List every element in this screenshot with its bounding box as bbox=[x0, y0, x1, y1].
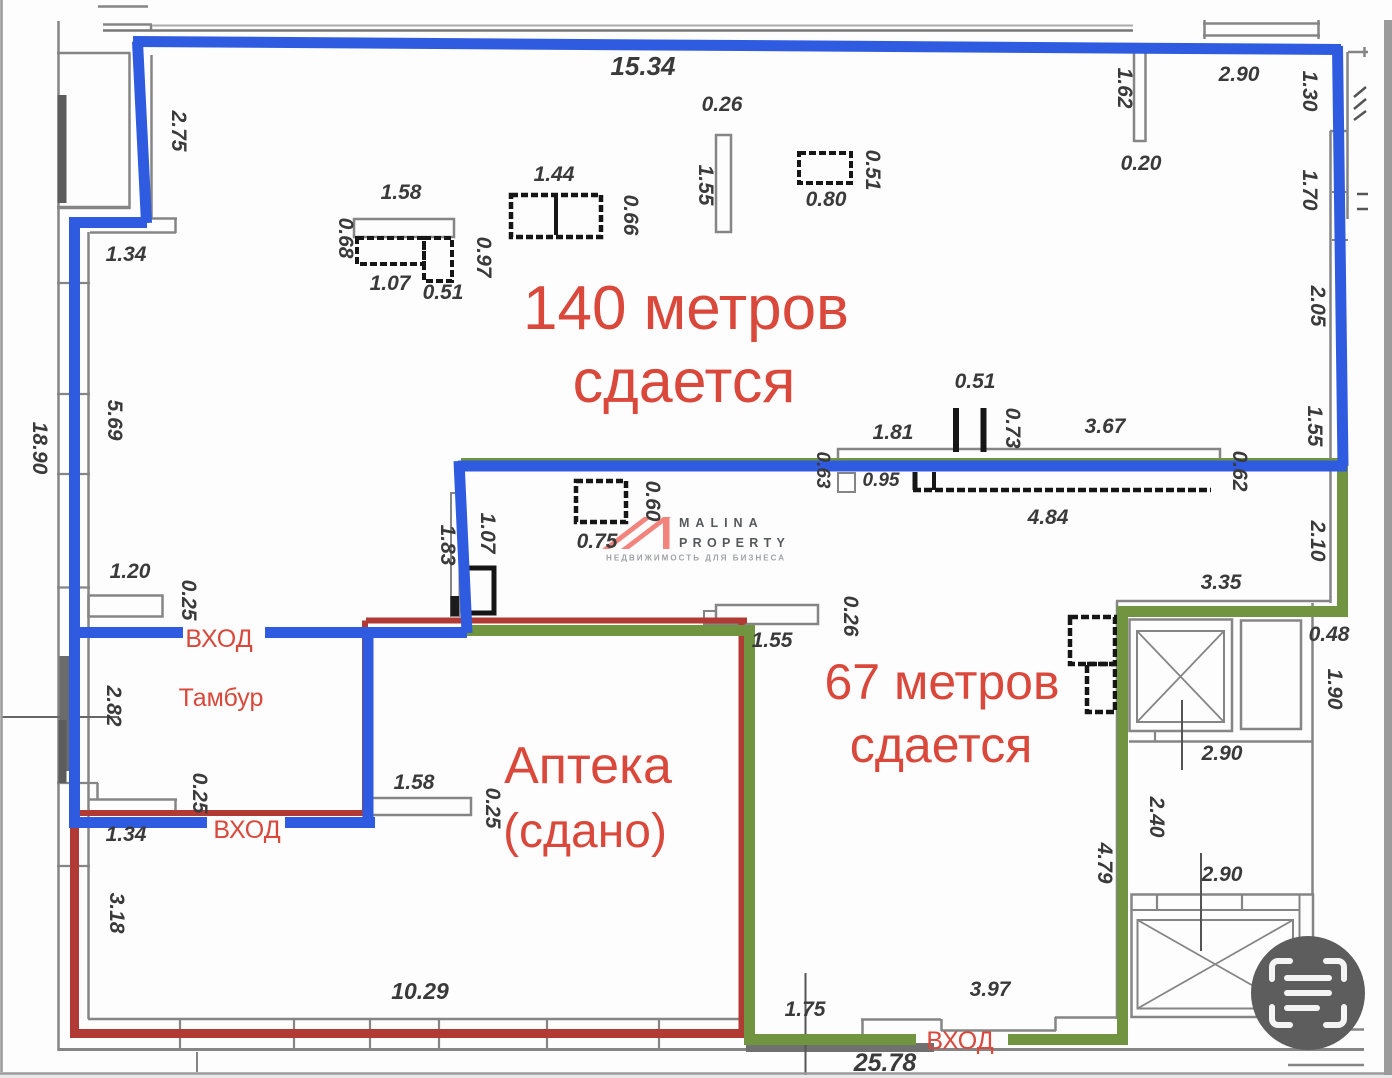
svg-text:3.67: 3.67 bbox=[1085, 415, 1127, 438]
svg-text:18.90: 18.90 bbox=[28, 422, 51, 475]
svg-text:3.18: 3.18 bbox=[105, 893, 128, 934]
svg-text:0.25: 0.25 bbox=[481, 788, 504, 829]
svg-text:2.90: 2.90 bbox=[1201, 863, 1243, 886]
svg-text:1.34: 1.34 bbox=[106, 243, 147, 266]
svg-text:Тамбур: Тамбур bbox=[179, 684, 264, 712]
svg-text:сдается: сдается bbox=[573, 347, 796, 415]
svg-text:MALINA: MALINA bbox=[679, 516, 764, 530]
svg-text:1.75: 1.75 bbox=[785, 998, 826, 1021]
svg-text:(сдано): (сдано) bbox=[503, 805, 667, 858]
svg-text:0.73: 0.73 bbox=[1001, 408, 1024, 449]
svg-text:5.69: 5.69 bbox=[103, 400, 126, 441]
svg-text:ВХОД: ВХОД bbox=[185, 625, 252, 653]
svg-text:10.29: 10.29 bbox=[391, 978, 449, 1004]
svg-text:0.25: 0.25 bbox=[177, 580, 200, 621]
svg-text:Аптека: Аптека bbox=[504, 737, 672, 795]
svg-text:2.40: 2.40 bbox=[1145, 796, 1168, 838]
svg-text:0.63: 0.63 bbox=[812, 452, 833, 489]
svg-text:15.34: 15.34 bbox=[610, 51, 676, 81]
svg-text:1.70: 1.70 bbox=[1298, 170, 1321, 211]
svg-text:0.60: 0.60 bbox=[641, 481, 664, 522]
svg-text:0.20: 0.20 bbox=[1121, 152, 1162, 175]
svg-text:2.90: 2.90 bbox=[1201, 742, 1243, 765]
svg-text:НЕДВИЖИМОСТЬ ДЛЯ БИЗНЕСА: НЕДВИЖИМОСТЬ ДЛЯ БИЗНЕСА bbox=[606, 554, 786, 563]
svg-text:1.34: 1.34 bbox=[106, 823, 147, 846]
svg-text:сдается: сдается bbox=[850, 717, 1033, 773]
svg-text:ВХОД: ВХОД bbox=[213, 816, 280, 844]
svg-text:1.58: 1.58 bbox=[381, 181, 422, 204]
svg-text:0.95: 0.95 bbox=[863, 470, 900, 491]
svg-text:0.51: 0.51 bbox=[861, 150, 884, 191]
svg-text:1.30: 1.30 bbox=[1298, 71, 1321, 112]
svg-text:2.75: 2.75 bbox=[167, 110, 190, 152]
svg-text:2.82: 2.82 bbox=[102, 685, 125, 727]
svg-text:2.10: 2.10 bbox=[1306, 520, 1329, 562]
svg-text:0.80: 0.80 bbox=[806, 188, 847, 211]
svg-text:140 метров: 140 метров bbox=[523, 274, 849, 343]
svg-text:1.62: 1.62 bbox=[1113, 68, 1136, 109]
svg-text:3.35: 3.35 bbox=[1201, 571, 1242, 594]
svg-text:0.26: 0.26 bbox=[839, 596, 862, 637]
svg-text:0.26: 0.26 bbox=[702, 93, 743, 116]
svg-text:0.51: 0.51 bbox=[955, 370, 996, 393]
svg-text:3.97: 3.97 bbox=[970, 978, 1012, 1001]
svg-text:1.83: 1.83 bbox=[436, 525, 459, 566]
svg-text:1.90: 1.90 bbox=[1323, 669, 1346, 710]
svg-text:1.81: 1.81 bbox=[873, 421, 914, 444]
svg-text:0.68: 0.68 bbox=[334, 218, 357, 259]
svg-text:4.79: 4.79 bbox=[1093, 842, 1116, 884]
svg-text:ВХОД: ВХОД bbox=[926, 1027, 993, 1055]
svg-text:1.07: 1.07 bbox=[476, 513, 499, 555]
svg-text:4.84: 4.84 bbox=[1027, 506, 1069, 529]
svg-text:0.66: 0.66 bbox=[619, 195, 642, 236]
svg-text:67 метров: 67 метров bbox=[824, 654, 1059, 710]
svg-text:0.48: 0.48 bbox=[1309, 623, 1350, 646]
svg-text:1.44: 1.44 bbox=[534, 163, 575, 186]
svg-text:0.51: 0.51 bbox=[423, 281, 464, 304]
svg-text:0.25: 0.25 bbox=[188, 773, 211, 814]
svg-text:0.97: 0.97 bbox=[472, 237, 495, 279]
svg-text:1.07: 1.07 bbox=[370, 272, 412, 295]
svg-text:PROPERTY: PROPERTY bbox=[679, 536, 790, 550]
svg-text:2.90: 2.90 bbox=[1218, 63, 1260, 86]
svg-text:1.55: 1.55 bbox=[752, 629, 793, 652]
svg-text:2.05: 2.05 bbox=[1306, 285, 1329, 327]
svg-text:1.55: 1.55 bbox=[1303, 406, 1326, 447]
svg-text:0.75: 0.75 bbox=[577, 530, 618, 553]
svg-text:1.58: 1.58 bbox=[394, 771, 435, 794]
svg-text:0.62: 0.62 bbox=[1228, 451, 1251, 492]
svg-text:1.55: 1.55 bbox=[694, 165, 717, 206]
svg-text:1.20: 1.20 bbox=[110, 560, 151, 583]
